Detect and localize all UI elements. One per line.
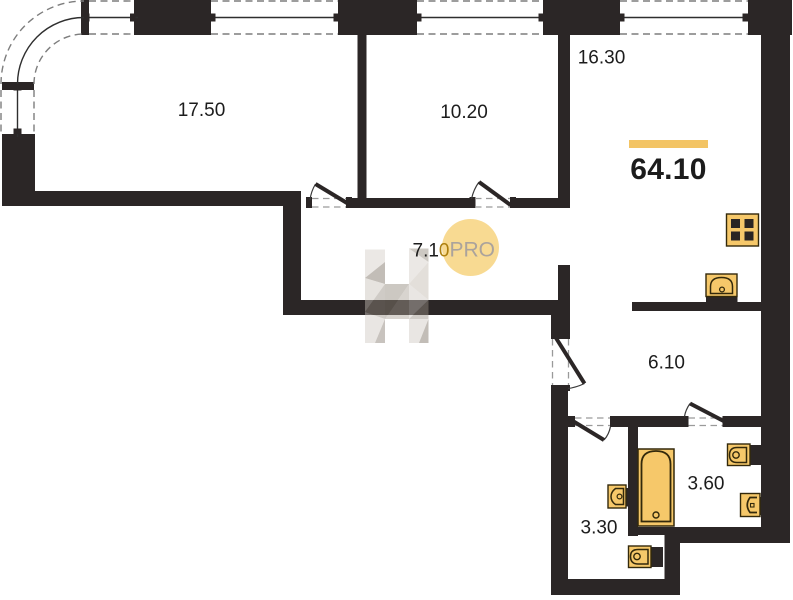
svg-text:7.10PRO: 7.10PRO — [413, 239, 496, 262]
svg-text:3.60: 3.60 — [688, 474, 725, 495]
svg-text:3.30: 3.30 — [581, 518, 618, 539]
svg-text:10.20: 10.20 — [440, 102, 488, 123]
svg-text:64.10: 64.10 — [630, 153, 707, 186]
svg-text:16.30: 16.30 — [578, 48, 626, 69]
svg-text:6.10: 6.10 — [648, 353, 685, 374]
svg-text:17.50: 17.50 — [178, 100, 226, 121]
